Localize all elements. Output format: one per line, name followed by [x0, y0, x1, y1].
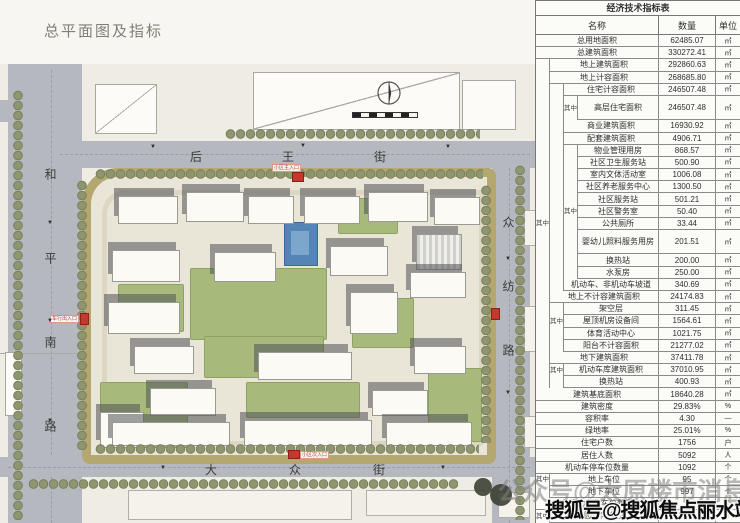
row-group-cell: 其中: [564, 206, 578, 218]
table-row: 水泵房250.00㎡: [536, 267, 740, 279]
table-row: 其中公共厕所33.44㎡: [536, 218, 740, 230]
row-group-cell: [550, 206, 564, 218]
indicator-unit: ㎡: [716, 84, 740, 96]
indicator-value: 25.01%: [659, 425, 716, 437]
building: [258, 352, 352, 380]
row-group-cell: [536, 315, 550, 327]
vehicle-entrance-marker-left: [80, 313, 89, 325]
row-group-cell: [564, 254, 578, 266]
elevation-marker: ▼: [47, 220, 53, 226]
indicator-name: 社区卫生服务站: [578, 157, 659, 169]
vehicle-entrance-label-left: 车行出入口: [50, 315, 79, 323]
indicator-value: 500.90: [659, 157, 716, 169]
building: [134, 346, 194, 374]
elevation-marker: ▼: [505, 390, 511, 396]
indicator-table: 经济技术指标表 名称 数量 单位 总用地面积62485.07㎡总建筑面积3302…: [535, 0, 740, 523]
street-name-right: 众纺路: [500, 216, 517, 408]
indicator-value: 340.69: [659, 279, 716, 291]
row-group-cell: [536, 303, 550, 315]
tree-row: [12, 90, 24, 520]
building: [248, 196, 294, 224]
indicator-unit: ㎡: [716, 206, 740, 218]
row-group-cell: [536, 340, 550, 352]
building: [304, 196, 360, 224]
indicator-unit: ㎡: [716, 181, 740, 193]
elevation-marker: ▼: [440, 465, 446, 471]
building: [150, 388, 216, 416]
indicator-unit: ㎡: [716, 291, 740, 303]
indicator-name: 婴幼儿照料服务用房: [578, 230, 659, 254]
row-group-cell: 其中: [550, 364, 564, 376]
row-group-cell: [536, 376, 550, 388]
row-group-cell: [536, 254, 550, 266]
table-row: 建筑基底面积18640.28㎡: [536, 388, 740, 400]
row-group-cell: [536, 364, 550, 376]
indicator-value: 868.57: [659, 145, 716, 157]
row-group-cell: [564, 157, 578, 169]
indicator-value: 330272.41: [659, 47, 716, 59]
table-title: 经济技术指标表: [536, 1, 740, 16]
row-group-cell: [550, 120, 564, 132]
secondary-entrance-label: 小区次入口: [300, 451, 329, 459]
indicator-unit: ㎡: [716, 72, 740, 84]
indicator-name: 高层住宅面积: [578, 96, 659, 120]
indicator-unit: ㎡: [716, 59, 740, 71]
indicator-unit: ㎡: [716, 352, 740, 364]
indicator-value: 4906.71: [659, 133, 716, 145]
row-group-cell: [550, 218, 564, 230]
table-row: 换热站200.00㎡: [536, 254, 740, 266]
indicator-name: 阳台不计容面积: [564, 340, 659, 352]
table-row: 社区养老服务中心1300.50㎡: [536, 181, 740, 193]
table-row: 建筑密度29.83%%: [536, 401, 740, 413]
table-row: 地上不计容建筑面积24174.83㎡: [536, 291, 740, 303]
lawn: [246, 382, 360, 418]
row-group-cell: [550, 169, 564, 181]
indicator-unit: ㎡: [716, 169, 740, 181]
row-group-cell: [536, 96, 550, 120]
row-group-cell: [550, 84, 564, 96]
row-group-cell: [550, 267, 564, 279]
indicator-name: 总建筑面积: [536, 47, 659, 59]
row-group-cell: [564, 169, 578, 181]
table-row: 其中高层住宅面积246507.48㎡: [536, 96, 740, 120]
table-body: 总用地面积62485.07㎡总建筑面积330272.41㎡地上建筑面积29286…: [536, 35, 740, 523]
indicator-value: 1300.50: [659, 181, 716, 193]
building: [414, 346, 466, 374]
indicator-value: 1756: [659, 437, 716, 449]
indicator-name: 居住人数: [536, 449, 659, 461]
row-group-cell: [536, 72, 550, 84]
row-group-cell: [564, 218, 578, 230]
indicator-unit: ㎡: [716, 328, 740, 340]
row-group-cell: [550, 254, 564, 266]
indicator-name: 建筑基底面积: [536, 388, 659, 400]
indicator-name: 总用地面积: [536, 35, 659, 47]
water-feature: [284, 222, 318, 266]
table-row: 架空层311.45㎡: [536, 303, 740, 315]
indicator-value: 400.93: [659, 376, 716, 388]
indicator-name: 社区服务站: [578, 193, 659, 205]
indicator-name: 架空层: [564, 303, 659, 315]
building: [118, 196, 178, 224]
table-row: 其中屋顶机房设备间1564.61㎡: [536, 315, 740, 327]
street-name-left: 和平南路: [42, 168, 59, 504]
indicator-name: 换热站: [578, 254, 659, 266]
row-group-cell: [536, 169, 550, 181]
row-group-cell: [550, 376, 564, 388]
row-group-cell: [550, 145, 564, 157]
indicator-unit: ㎡: [716, 303, 740, 315]
building: [350, 292, 398, 334]
row-group-cell: [550, 181, 564, 193]
row-group-cell: [550, 96, 564, 120]
table-row: 婴幼儿照料服务用房201.51㎡: [536, 230, 740, 254]
row-group-cell: [550, 340, 564, 352]
indicator-value: 250.00: [659, 267, 716, 279]
indicator-unit: ㎡: [716, 133, 740, 145]
indicator-value: 268685.80: [659, 72, 716, 84]
table-row: 地上建筑面积292860.63㎡: [536, 59, 740, 71]
table-row: 居住人数5092人: [536, 449, 740, 461]
indicator-value: 16930.92: [659, 120, 716, 132]
indicator-unit: ㎡: [716, 230, 740, 254]
elevation-marker: ▼: [445, 144, 451, 150]
indicator-value: 37411.78: [659, 352, 716, 364]
indicator-unit: ㎡: [716, 254, 740, 266]
table-row: 地下建筑面积37411.78㎡: [536, 352, 740, 364]
scale-bar-icon: [352, 112, 418, 118]
indicator-value: 311.45: [659, 303, 716, 315]
row-group-cell: [536, 267, 550, 279]
indicator-name: 容积率: [536, 413, 659, 425]
table-row: 机动车、非机动车坡道340.69㎡: [536, 279, 740, 291]
row-group-cell: [536, 328, 550, 340]
indicator-unit: ㎡: [716, 96, 740, 120]
street-name-top: 后王街: [190, 148, 466, 165]
row-group-cell: 其中: [536, 218, 550, 230]
elevation-marker: ▼: [505, 256, 511, 262]
table-row: 社区服务站501.21㎡: [536, 193, 740, 205]
indicator-name: 公共厕所: [578, 218, 659, 230]
row-group-cell: [536, 133, 550, 145]
indicator-unit: ㎡: [716, 145, 740, 157]
indicator-value: 1564.61: [659, 315, 716, 327]
table-row: 室内文体活动室1006.08㎡: [536, 169, 740, 181]
parking-structure: [416, 234, 462, 270]
vehicle-entrance-marker-right: [491, 308, 500, 320]
indicator-unit: ㎡: [716, 218, 740, 230]
table-row: 阳台不计容面积21277.02㎡: [536, 340, 740, 352]
master-plan: 总平面图及指标: [0, 0, 535, 523]
row-group-cell: [536, 84, 550, 96]
table-row: 地上计容面积268685.80㎡: [536, 72, 740, 84]
tree-row: [28, 478, 458, 490]
indicator-unit: 人: [716, 449, 740, 461]
indicator-unit: ㎡: [716, 279, 740, 291]
row-group-cell: [536, 352, 550, 364]
offsite-parcel: [128, 490, 352, 520]
indicator-value: 4.30: [659, 413, 716, 425]
secondary-entrance-marker: [288, 450, 300, 459]
indicator-value: 200.00: [659, 254, 716, 266]
row-group-cell: [536, 193, 550, 205]
indicator-value: 1021.75: [659, 328, 716, 340]
row-group-cell: [536, 230, 550, 254]
tree-row: [95, 443, 479, 455]
table-header-row: 名称 数量 单位: [536, 16, 740, 35]
indicator-name: 住宅计容面积: [564, 84, 659, 96]
row-group-cell: [536, 291, 550, 303]
indicator-name: 地下建筑面积: [550, 352, 659, 364]
indicator-name: 地上计容面积: [550, 72, 659, 84]
building: [214, 252, 276, 282]
indicator-unit: %: [716, 401, 740, 413]
row-group-cell: [564, 267, 578, 279]
indicator-name: 社区养老服务中心: [578, 181, 659, 193]
row-group-cell: [564, 230, 578, 254]
indicator-unit: %: [716, 425, 740, 437]
indicator-name: 屋顶机房设备间: [564, 315, 659, 327]
row-group-cell: [550, 303, 564, 315]
indicator-value: 21277.02: [659, 340, 716, 352]
indicator-name: 水泵房: [578, 267, 659, 279]
indicator-unit: —: [716, 413, 740, 425]
offsite-building: [95, 84, 157, 134]
indicator-name: 体育活动中心: [564, 328, 659, 340]
indicator-name: 社区警务室: [578, 206, 659, 218]
indicator-value: 501.21: [659, 193, 716, 205]
offsite-building: [253, 72, 460, 130]
indicator-name: 地上不计容建筑面积: [550, 291, 659, 303]
table-row: 绿地率25.01%%: [536, 425, 740, 437]
indicator-value: 201.51: [659, 230, 716, 254]
indicator-name: 机动车、非机动车坡道: [564, 279, 659, 291]
indicator-name: 住宅户数: [536, 437, 659, 449]
indicator-name: 绿地率: [536, 425, 659, 437]
row-group-cell: [536, 157, 550, 169]
indicator-name: 室内文体活动室: [578, 169, 659, 181]
elevation-marker: ▼: [47, 318, 53, 324]
building: [330, 246, 388, 276]
row-group-cell: [564, 145, 578, 157]
indicator-unit: ㎡: [716, 47, 740, 59]
offsite-parcel: [366, 490, 486, 516]
indicator-unit: ㎡: [716, 364, 740, 376]
indicator-value: 37010.95: [659, 364, 716, 376]
indicator-unit: ㎡: [716, 376, 740, 388]
tree-row: [225, 128, 480, 140]
street-name-bottom: 大众街: [205, 461, 457, 478]
indicator-unit: 户: [716, 437, 740, 449]
building: [112, 250, 180, 282]
table-row: 总用地面积62485.07㎡: [536, 35, 740, 47]
row-group-cell: [550, 279, 564, 291]
indicator-value: 24174.83: [659, 291, 716, 303]
indicator-unit: ㎡: [716, 120, 740, 132]
north-compass-icon: [376, 80, 402, 106]
col-header-quantity: 数量: [659, 16, 716, 34]
indicator-unit: ㎡: [716, 157, 740, 169]
building: [410, 272, 466, 298]
building: [434, 197, 480, 225]
indicator-value: 1006.08: [659, 169, 716, 181]
row-group-cell: [550, 157, 564, 169]
row-group-cell: [550, 230, 564, 254]
row-group-cell: [564, 193, 578, 205]
table-row: 商业建筑面积16930.92㎡: [536, 120, 740, 132]
indicator-unit: ㎡: [716, 193, 740, 205]
table-row: 物业管理用房868.57㎡: [536, 145, 740, 157]
table-row: 总建筑面积330272.41㎡: [536, 47, 740, 59]
table-row: 换热站400.93㎡: [536, 376, 740, 388]
table-row: 配套建筑面积4906.71㎡: [536, 133, 740, 145]
table-row: 住宅计容面积246507.48㎡: [536, 84, 740, 96]
indicator-value: 62485.07: [659, 35, 716, 47]
table-row: 住宅户数1756户: [536, 437, 740, 449]
indicator-value: 246507.48: [659, 84, 716, 96]
row-group-cell: [564, 181, 578, 193]
indicator-unit: ㎡: [716, 35, 740, 47]
row-group-cell: [550, 133, 564, 145]
elevation-marker: ▼: [160, 465, 166, 471]
indicator-value: 246507.48: [659, 96, 716, 120]
elevation-marker: ▼: [300, 143, 306, 149]
col-header-name: 名称: [536, 16, 659, 34]
row-group-cell: [550, 328, 564, 340]
row-group-cell: [536, 279, 550, 291]
indicator-unit: ㎡: [716, 388, 740, 400]
offsite-building: [462, 80, 516, 130]
indicator-name: 机动车库建筑面积: [564, 364, 659, 376]
indicator-name: 建筑密度: [536, 401, 659, 413]
elevation-marker: ▼: [47, 418, 53, 424]
screenshot-root: 总平面图及指标: [0, 0, 740, 523]
indicator-unit: ㎡: [716, 315, 740, 327]
indicator-value: 50.40: [659, 206, 716, 218]
row-group-cell: [536, 59, 550, 71]
indicator-name: 配套建筑面积: [564, 133, 659, 145]
row-group-cell: [536, 145, 550, 157]
watermark-sohu: 搜狐号@搜狐焦点丽水站: [545, 494, 740, 523]
indicator-value: 18640.28: [659, 388, 716, 400]
row-group-cell: [550, 193, 564, 205]
page-title: 总平面图及指标: [44, 20, 163, 41]
table-row: 其中社区警务室50.40㎡: [536, 206, 740, 218]
table-row: 容积率4.30—: [536, 413, 740, 425]
row-group-cell: [536, 181, 550, 193]
indicator-value: 33.44: [659, 218, 716, 230]
row-group-cell: [536, 120, 550, 132]
indicator-name: 换热站: [564, 376, 659, 388]
indicator-unit: ㎡: [716, 340, 740, 352]
elevation-marker: ▼: [150, 144, 156, 150]
building: [108, 302, 180, 334]
table-row: 社区卫生服务站500.90㎡: [536, 157, 740, 169]
building: [368, 192, 428, 222]
indicator-name: 商业建筑面积: [564, 120, 659, 132]
building: [372, 390, 428, 416]
indicator-name: 物业管理用房: [578, 145, 659, 157]
indicator-name: 地上建筑面积: [550, 59, 659, 71]
main-entrance-marker: [292, 172, 304, 182]
table-row: 体育活动中心1021.75㎡: [536, 328, 740, 340]
indicator-value: 5092: [659, 449, 716, 461]
indicator-unit: ㎡: [716, 267, 740, 279]
indicator-value: 29.83%: [659, 401, 716, 413]
row-group-cell: 其中: [550, 315, 564, 327]
indicator-value: 292860.63: [659, 59, 716, 71]
row-group-cell: 其中: [564, 96, 578, 120]
main-entrance-label: 小区主入口: [272, 164, 301, 172]
col-header-unit: 单位: [716, 16, 740, 34]
building: [186, 192, 244, 222]
row-group-cell: [536, 206, 550, 218]
table-row: 其中机动车库建筑面积37010.95㎡: [536, 364, 740, 376]
